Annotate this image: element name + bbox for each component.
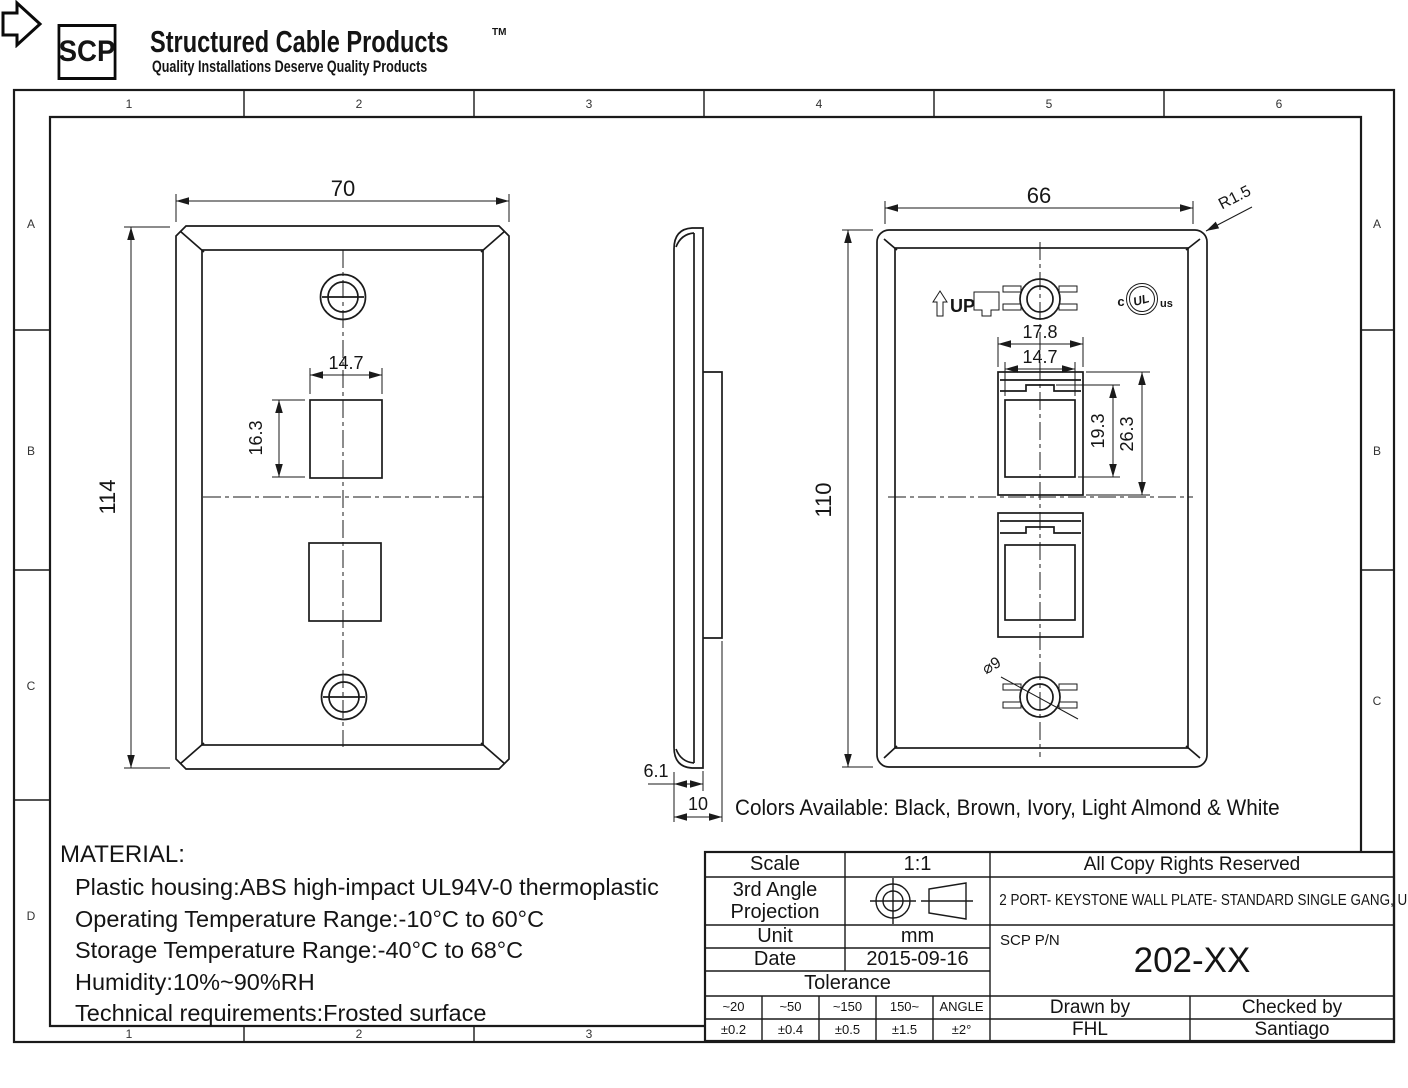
scale-label: Scale — [705, 852, 845, 877]
material-line: Operating Temperature Range:-10°C to 60°… — [75, 904, 659, 936]
dim-screw-hole-dia: ⌀9 — [979, 654, 1004, 678]
tolerance-value: ±1.5 — [876, 1019, 933, 1041]
date-label: Date — [705, 948, 845, 971]
part-number-value: 202-XX — [990, 932, 1394, 990]
grid-top-4: 4 — [816, 97, 823, 111]
material-line: Technical requirements:Frosted surface — [75, 998, 659, 1030]
grid-top-2: 2 — [356, 97, 363, 111]
dim-side-thickness: 6.1 — [643, 761, 668, 781]
ul-label: UL — [1132, 291, 1151, 309]
tolerance-label: Tolerance — [705, 971, 990, 996]
back-view: 66 110 R1.5 17.8 14.7 19.3 26.3 ⌀9 UP c … — [811, 183, 1254, 767]
grid-top-3: 3 — [586, 97, 593, 111]
tolerance-header: ~150 — [819, 996, 876, 1019]
grid-right-c: C — [1373, 694, 1382, 708]
dim-latch-depth: 19.3 — [1088, 413, 1108, 448]
ul-c-label: c — [1117, 294, 1124, 309]
drawn-by-value: FHL — [990, 1019, 1190, 1041]
side-view: 6.1 10 — [643, 228, 722, 822]
material-line: Plastic housing:ABS high-impact UL94V-0 … — [75, 872, 659, 904]
material-line: Humidity:10%~90%RH — [75, 967, 659, 999]
drawn-by-label: Drawn by — [990, 996, 1190, 1019]
drawing-description: 2 PORT- KEYSTONE WALL PLATE- STANDARD SI… — [990, 877, 1339, 925]
up-arrow-icon — [933, 291, 947, 316]
drawing-sheet: SCP Structured Cable Products TM Quality… — [0, 0, 1408, 1088]
projection-label: 3rd Angle Projection — [710, 877, 840, 925]
dim-front-height: 114 — [95, 479, 120, 514]
grid-left-d: D — [27, 909, 36, 923]
front-view: 70 114 14.7 16.3 — [95, 176, 509, 769]
checked-by-label: Checked by — [1190, 996, 1394, 1019]
tolerance-header: ~50 — [762, 996, 819, 1019]
checked-by-value: Santiago — [1190, 1019, 1394, 1041]
tolerance-header: 150~ — [876, 996, 933, 1019]
tolerance-value: ±0.2 — [705, 1019, 762, 1041]
material-notes: MATERIAL: Plastic housing:ABS high-impac… — [60, 841, 659, 1030]
grid-left-c: C — [27, 679, 36, 693]
grid-left-a: A — [27, 217, 35, 231]
unit-value: mm — [845, 925, 990, 948]
dim-front-port-width: 14.7 — [328, 353, 363, 373]
grid-right-b: B — [1373, 444, 1381, 458]
up-label: UP — [950, 296, 975, 316]
dim-jack-pitch: 17.8 — [1022, 322, 1057, 342]
unit-label: Unit — [705, 925, 845, 948]
tolerance-header: ANGLE — [933, 996, 990, 1019]
grid-top-5: 5 — [1046, 97, 1053, 111]
dim-side-depth: 10 — [688, 794, 708, 814]
tolerance-header: ~20 — [705, 996, 762, 1019]
grid-right-a: A — [1373, 217, 1381, 231]
keystone-jack-icon — [974, 292, 999, 316]
material-line: Storage Temperature Range:-40°C to 68°C — [75, 935, 659, 967]
grid-left-b: B — [27, 444, 35, 458]
tolerance-value: ±2° — [933, 1019, 990, 1041]
copyright-note: All Copy Rights Reserved — [990, 852, 1394, 877]
dim-front-width: 70 — [331, 176, 355, 201]
dim-back-port-width: 14.7 — [1022, 347, 1057, 367]
dim-back-width: 66 — [1027, 183, 1051, 208]
dim-back-height: 110 — [811, 482, 836, 517]
material-title: MATERIAL: — [60, 841, 659, 869]
dim-port-depth: 26.3 — [1117, 416, 1137, 451]
grid-top-1: 1 — [126, 97, 133, 111]
tolerance-value: ±0.4 — [762, 1019, 819, 1041]
dim-front-port-height: 16.3 — [246, 420, 266, 455]
tolerance-value: ±0.5 — [819, 1019, 876, 1041]
ul-us-label: us — [1160, 298, 1173, 310]
grid-top-6: 6 — [1276, 97, 1283, 111]
date-value: 2015-09-16 — [845, 948, 990, 971]
projection-symbol-icon — [870, 878, 973, 924]
colors-available-note: Colors Available: Black, Brown, Ivory, L… — [735, 795, 1280, 821]
scale-value: 1:1 — [845, 852, 990, 877]
